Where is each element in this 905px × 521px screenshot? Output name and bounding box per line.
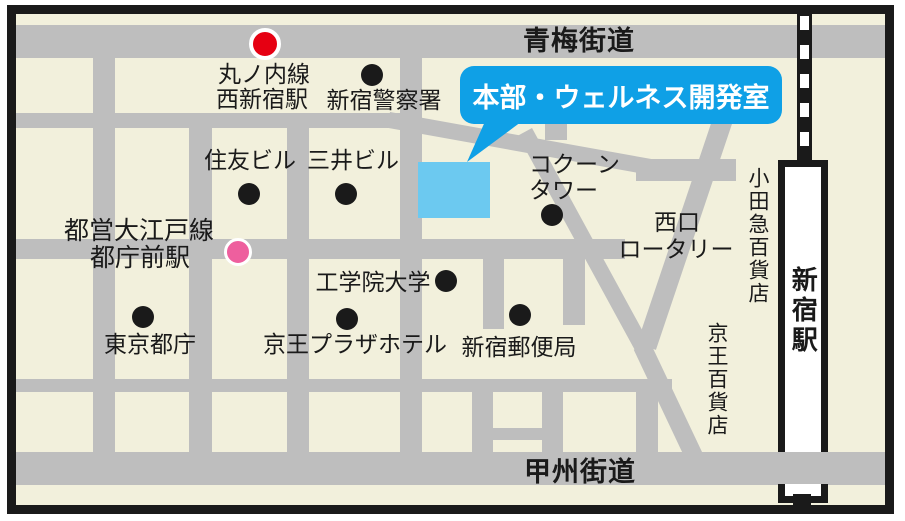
label-sumitomo-building: 住友ビル	[204, 148, 296, 172]
road-vertical-2	[189, 128, 212, 452]
label-cocoon-tower-2: タワー	[529, 178, 598, 202]
label-police-station: 新宿警察署	[327, 88, 442, 112]
label-koshu-kaido: 甲州街道	[524, 458, 636, 486]
label-tochomae-station: 都庁前駅	[90, 245, 190, 271]
marker-mitsui-building	[335, 183, 357, 205]
label-nishi-shinjuku-station: 西新宿駅	[216, 87, 308, 111]
marker-tochomae-station	[224, 238, 252, 266]
road-stub-4	[542, 392, 563, 452]
shinjuku-station-entrance	[793, 494, 811, 512]
label-west-exit-2: ロータリー	[619, 237, 734, 261]
marker-sumitomo-building	[238, 183, 260, 205]
road-rotary-top	[636, 159, 736, 181]
road-stub-3	[472, 392, 493, 452]
label-marunouchi-line: 丸ノ内線	[218, 62, 310, 86]
road-horizontal-2	[16, 113, 402, 128]
label-tokyo-metro-govt: 東京都庁	[104, 332, 196, 356]
marker-tokyo-metro-govt	[132, 306, 154, 328]
marker-nishi-shinjuku-station	[249, 28, 281, 60]
road-ome-kaido	[16, 25, 885, 58]
label-post-office: 新宿郵便局	[462, 335, 577, 359]
label-mitsui-building: 三井ビル	[307, 148, 399, 172]
callout-bubble: 本部・ウェルネス開発室	[460, 66, 782, 124]
marker-keio-plaza-hotel	[336, 308, 358, 330]
destination-building	[418, 162, 490, 218]
road-koshu-kaido	[16, 452, 885, 485]
marker-cocoon-tower	[541, 204, 563, 226]
marker-post-office	[509, 304, 531, 326]
marker-kogakuin-university	[435, 270, 457, 292]
access-map: 青梅街道 甲州街道 丸ノ内線 西新宿駅 新宿警察署 住友ビル 三井ビル コクーン…	[0, 0, 905, 521]
label-keio-plaza-hotel: 京王プラザホテル	[263, 332, 447, 356]
label-kogakuin-university: 工学院大学	[316, 270, 431, 294]
road-stub-1	[483, 259, 504, 329]
road-stub-5	[636, 392, 658, 452]
railway-dashes	[800, 16, 809, 158]
road-stub-2	[563, 259, 585, 325]
label-keio-dept-store: 京王百貨店	[705, 322, 727, 437]
label-odakyu-dept-store: 小田急百貨店	[746, 167, 768, 305]
label-oedo-line: 都営大江戸線	[64, 218, 214, 244]
road-vertical-3	[287, 128, 309, 452]
marker-police-station	[361, 64, 383, 86]
callout-label: 本部・ウェルネス開発室	[473, 76, 770, 115]
label-cocoon-tower-1: コクーン	[529, 152, 620, 176]
label-shinjuku-station: 新宿駅	[789, 266, 816, 356]
label-west-exit-1: 西口	[654, 210, 700, 234]
label-ome-kaido: 青梅街道	[523, 27, 635, 55]
road-connector	[493, 428, 542, 440]
